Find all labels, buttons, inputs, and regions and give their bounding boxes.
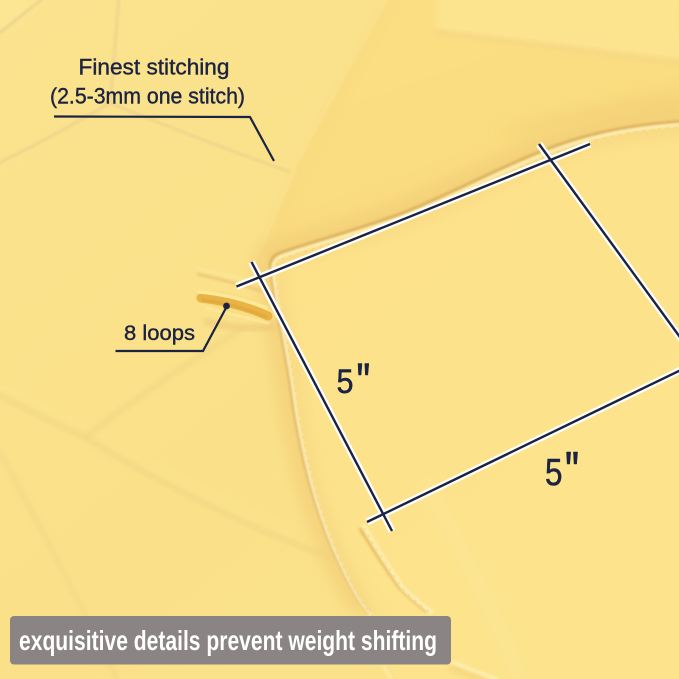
svg-text:5: 5 xyxy=(545,452,563,494)
svg-text:Finest stitching: Finest stitching xyxy=(79,55,230,80)
svg-text:8 loops: 8 loops xyxy=(124,322,195,345)
svg-text:(2.5-3mm one stitch): (2.5-3mm one stitch) xyxy=(50,84,245,109)
svg-text:exquisitive details prevent we: exquisitive details prevent weight shift… xyxy=(19,625,437,656)
svg-text:5: 5 xyxy=(337,363,354,401)
